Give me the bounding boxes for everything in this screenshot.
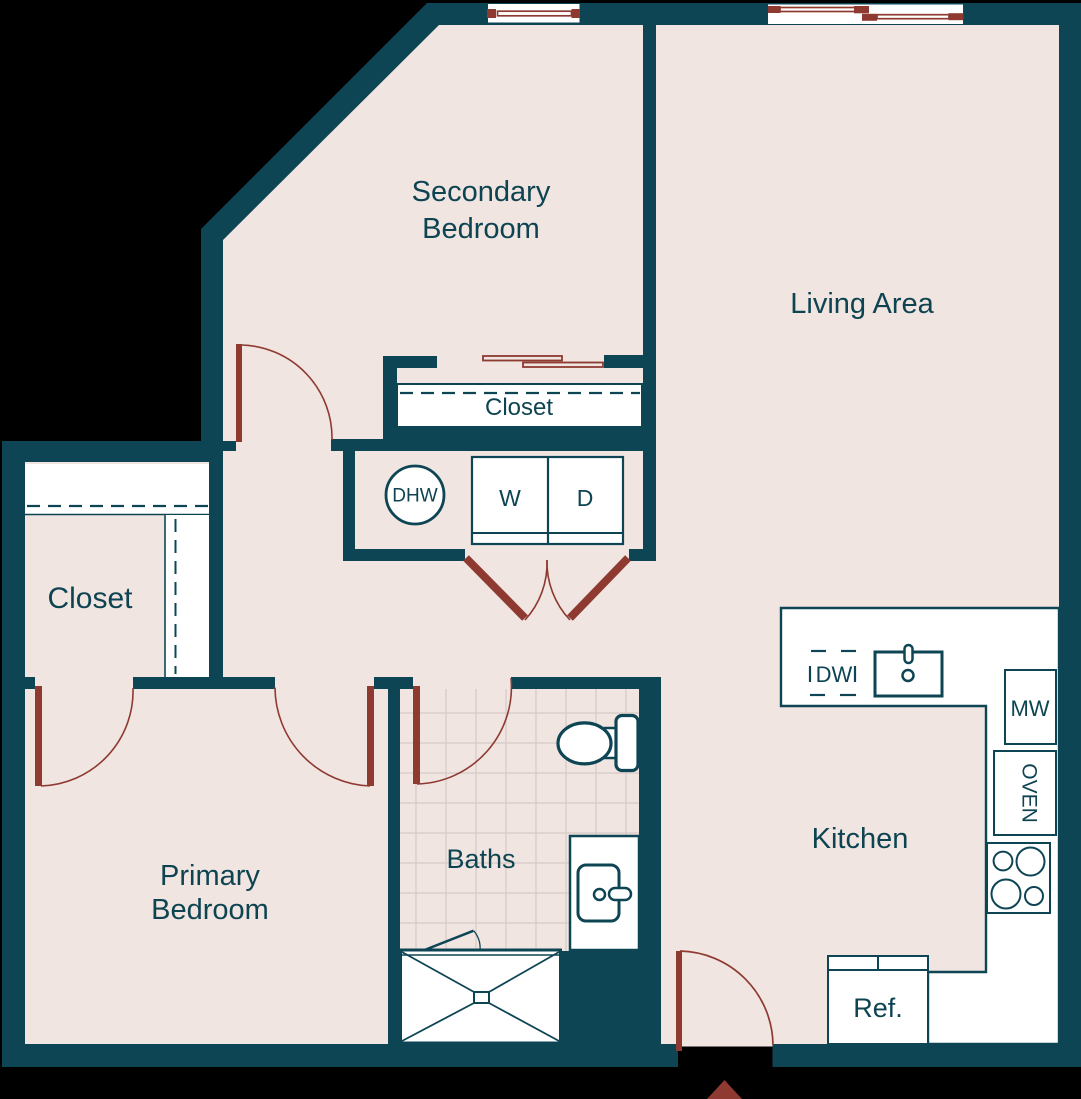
svg-text:Ref.: Ref. [853, 993, 903, 1023]
svg-text:Closet: Closet [47, 582, 133, 615]
svg-text:Closet: Closet [485, 394, 553, 421]
svg-text:DHW: DHW [392, 486, 437, 507]
svg-text:Bedroom: Bedroom [151, 894, 269, 926]
svg-text:D: D [577, 485, 594, 511]
svg-text:W: W [499, 485, 521, 511]
svg-text:DW: DW [816, 662, 853, 687]
svg-text:OVEN: OVEN [1018, 763, 1041, 823]
svg-text:MW: MW [1010, 696, 1049, 721]
svg-text:Kitchen: Kitchen [812, 823, 909, 855]
svg-text:Baths: Baths [446, 844, 515, 874]
svg-text:Bedroom: Bedroom [422, 213, 540, 245]
svg-text:Primary: Primary [160, 860, 260, 892]
svg-text:Secondary: Secondary [412, 176, 551, 208]
svg-text:Living Area: Living Area [790, 288, 934, 320]
